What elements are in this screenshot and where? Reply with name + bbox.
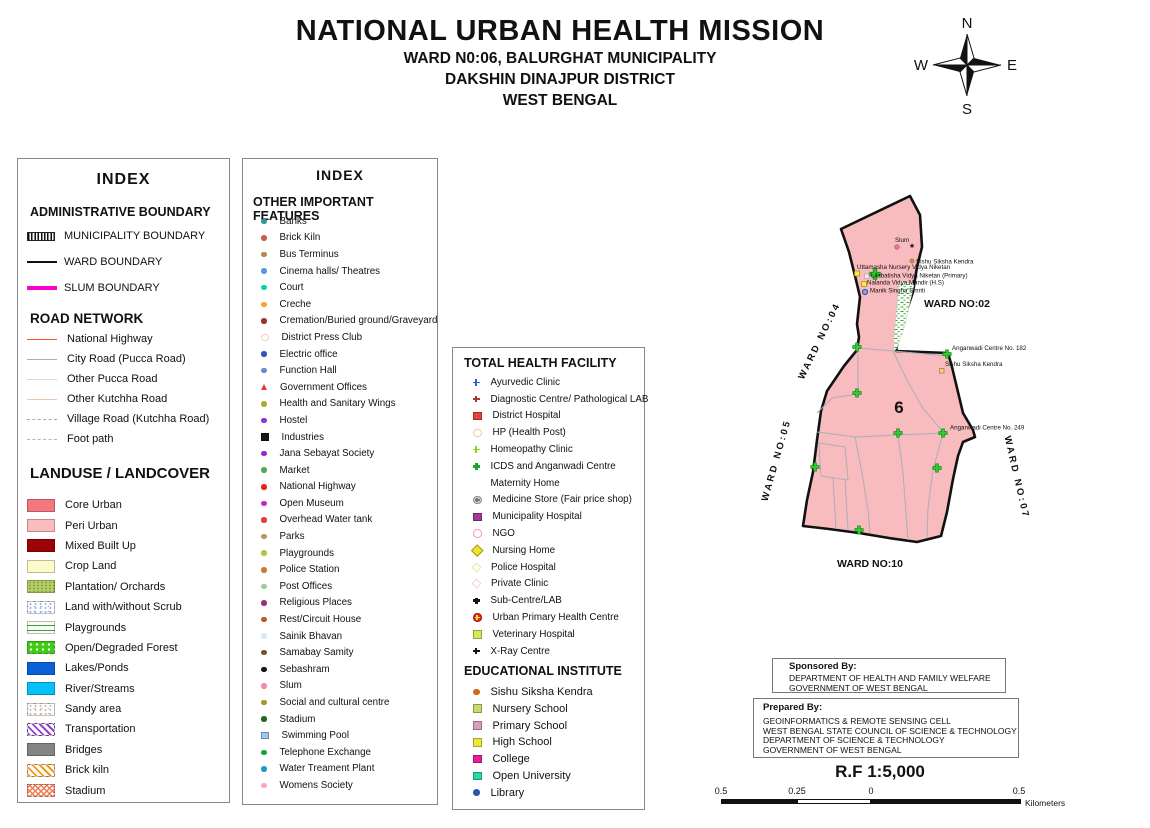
scale-unit-label: Kilometers (1025, 798, 1065, 808)
health-marker-icon (473, 446, 480, 453)
legend-item-label: Court (280, 282, 304, 293)
legend-item-label: Other Pucca Road (67, 373, 158, 385)
legend-item: Lakes/Ponds (18, 658, 229, 678)
legend-item-label: X-Ray Centre (491, 646, 550, 657)
section-landuse: LANDUSE / LANDCOVER (18, 465, 229, 485)
legend-item-label: Veterinary Hospital (493, 629, 575, 640)
legend-item: Mixed Built Up (18, 536, 229, 556)
feature-marker-icon (261, 219, 267, 225)
compass-rose-icon: N W E S (905, 12, 1029, 124)
legend-item-label: Foot path (67, 433, 113, 445)
health-marker-icon (473, 513, 482, 522)
legend-item-label: Peri Urban (65, 520, 118, 532)
scale-tick-label: 0.5 (1013, 786, 1026, 796)
legend-item-label: Private Clinic (491, 578, 548, 589)
feature-marker-icon (261, 467, 267, 473)
legend-item-label: Land with/without Scrub (65, 601, 182, 613)
legend-item-label: Village Road (Kutchha Road) (67, 413, 209, 425)
feature-marker-icon (261, 501, 267, 507)
legend-item: Sainik Bhavan (243, 628, 437, 645)
feature-marker-icon (261, 584, 267, 590)
legend-item: Industries (243, 429, 437, 446)
legend-item-label: Sishu Siksha Kendra (491, 686, 593, 698)
poi-label: Uttamasha Nursery Vidya Niketan (857, 264, 951, 271)
legend-item-label: Municipality Hospital (493, 511, 582, 522)
feature-marker-icon (261, 766, 267, 772)
legend-item-label: Religious Places (280, 597, 352, 608)
legend-item-label: Creche (280, 299, 312, 310)
legend-item: Cremation/Buried ground/Graveyard (243, 313, 437, 330)
legend-item: River/Streams (18, 679, 229, 699)
road-line-swatch (27, 379, 57, 380)
education-marker-icon (473, 689, 480, 696)
legend-item: Brick Kiln (243, 230, 437, 247)
health-marker-icon (472, 579, 482, 589)
legend-item: Electric office (243, 346, 437, 363)
feature-marker-icon (261, 252, 267, 258)
scale-bar-segment (797, 799, 871, 804)
legend-item: City Road (Pucca Road) (18, 349, 229, 369)
neighbor-ward-label: WARD NO:02 (924, 298, 990, 310)
poi-label: Anganwadi Centre No. 182 (952, 345, 1027, 352)
feature-marker-icon (261, 302, 267, 308)
poi-label: Sishu Siksha Kendra (945, 361, 1003, 368)
legend-item-label: Cinema halls/ Theatres (280, 266, 381, 277)
legend-item: Health and Sanitary Wings (243, 396, 437, 413)
sishu-kendra-dot (910, 259, 914, 263)
legend-item-label: Medicine Store (Fair price shop) (493, 494, 632, 505)
legend-item: HP (Health Post) (453, 424, 644, 441)
boundary-swatch-icon (27, 261, 57, 264)
landuse-swatch (27, 703, 55, 716)
scale-tick-label: 0.25 (788, 786, 806, 796)
legend-item: SLUM BOUNDARY (18, 275, 229, 301)
legend-item: ICDS and Anganwadi Centre (453, 458, 644, 475)
legend-item-label: ICDS and Anganwadi Centre (491, 461, 616, 472)
health-marker-icon (473, 412, 482, 421)
legend-item: Social and cultural centre (243, 694, 437, 711)
landuse-swatch (27, 743, 55, 756)
legend-item: Nursing Home (453, 542, 644, 559)
feature-marker-icon (261, 268, 267, 274)
legend-item: National Highway (18, 329, 229, 349)
neighbor-ward-label: WARD NO:05 (760, 418, 794, 502)
landuse-swatch (27, 539, 55, 552)
compass-s-label: S (962, 101, 972, 118)
legend-item-label: Swimming Pool (282, 730, 350, 741)
school-square-marker (855, 271, 860, 276)
legend-item-label: Homeopathy Clinic (491, 444, 573, 455)
landuse-swatch (27, 580, 55, 593)
legend-item-label: Urban Primary Health Centre (493, 612, 619, 623)
scale-tick-label: 0 (868, 786, 873, 796)
legend-item-label: Playgrounds (280, 548, 334, 559)
compass-star (933, 34, 1001, 96)
legend-title: INDEX (18, 171, 229, 193)
legend-item-label: Police Hospital (491, 562, 556, 573)
legend-item-label: Market (280, 465, 310, 476)
legend-item-label: Bridges (65, 744, 102, 756)
road-line-swatch (27, 359, 57, 360)
feature-marker-icon (261, 600, 267, 606)
poi-label: Manik Singha Smriti (870, 288, 925, 295)
legend-panel-index: INDEX ADMINISTRATIVE BOUNDARY MUNICIPALI… (17, 158, 230, 803)
feature-marker-icon (261, 617, 267, 623)
legend-item-label: College (493, 753, 530, 765)
health-marker-icon (473, 529, 482, 538)
sponsored-by-title: Sponsored By: (789, 662, 1005, 672)
feature-marker-icon (261, 285, 267, 291)
legend-item: Sandy area (18, 699, 229, 719)
legend-item: Crop Land (18, 556, 229, 576)
legend-item: Maternity Home (453, 475, 644, 492)
legend-item: Stadium (243, 711, 437, 728)
education-marker-icon (473, 789, 480, 796)
legend-item: Womens Society (243, 777, 437, 794)
neighbor-ward-label: WARD NO:10 (837, 558, 903, 570)
health-marker-icon (473, 496, 482, 505)
landuse-swatch (27, 560, 55, 573)
legend-item: Overhead Water tank (243, 512, 437, 529)
representative-fraction: R.F 1:5,000 (705, 762, 1055, 782)
legend-item: Samabay Samity (243, 644, 437, 661)
health-marker-icon (472, 562, 482, 572)
feature-marker-icon (261, 384, 267, 390)
legend-item-label: Government Offices (280, 382, 367, 393)
legend-item: Municipality Hospital (453, 508, 644, 525)
legend-item-label: Nursing Home (493, 545, 556, 556)
feature-marker-icon (261, 484, 267, 490)
legend-item: Primary School (453, 717, 644, 734)
legend-item: Telephone Exchange (243, 744, 437, 761)
legend-item: Court (243, 279, 437, 296)
legend-item-label: Police Station (280, 564, 340, 575)
sponsored-line: GOVERNMENT OF WEST BENGAL (789, 684, 1005, 694)
legend-item-label: Electric office (280, 349, 338, 360)
legend-item-label: Other Kutchha Road (67, 393, 167, 405)
feature-list: Banks Brick Kiln Bus Terminus Cinema hal… (243, 213, 437, 794)
boundary-swatch-icon (27, 286, 57, 290)
ward-number: 6 (894, 398, 903, 417)
legend-item: Water Treament Plant (243, 761, 437, 778)
legend-item: Foot path (18, 429, 229, 449)
legend-item-label: Library (491, 787, 525, 799)
legend-item: Police Station (243, 561, 437, 578)
legend-item: Peri Urban (18, 515, 229, 535)
ward-boundary-polygon (803, 196, 975, 542)
feature-marker-icon (261, 433, 269, 441)
legend-item-label: National Highway (67, 333, 153, 345)
legend-item: WARD BOUNDARY (18, 249, 229, 275)
education-marker-icon (473, 772, 482, 781)
legend-item-label: HP (Health Post) (493, 427, 566, 438)
educational-list: Sishu Siksha Kendra Nursery School Prima… (453, 684, 644, 802)
legend-item: Village Road (Kutchha Road) (18, 409, 229, 429)
legend-item-label: NGO (493, 528, 515, 539)
legend-item: Police Hospital (453, 559, 644, 576)
legend-item-label: Sainik Bhavan (280, 631, 343, 642)
prepared-line: GOVERNMENT OF WEST BENGAL (763, 746, 1018, 756)
legend-item: Homeopathy Clinic (453, 441, 644, 458)
scale-bar: 0.5 0.25 0 0.5 Kilometers (705, 786, 1075, 814)
legend-item-label: Post Offices (280, 581, 333, 592)
legend-item: Swimming Pool (243, 727, 437, 744)
legend-item: Sishu Siksha Kendra (453, 684, 644, 701)
legend-item: Veterinary Hospital (453, 626, 644, 643)
legend-item-label: Stadium (65, 785, 105, 797)
legend-item-label: Crop Land (65, 560, 116, 572)
feature-marker-icon (261, 716, 267, 722)
poi-label: Lilabatisha Vidya Niketan (Primary) (871, 273, 968, 280)
feature-marker-icon (261, 334, 269, 342)
legend-item-label: Playgrounds (65, 622, 126, 634)
feature-marker-icon (261, 550, 267, 556)
compass-n-label: N (962, 15, 973, 32)
scale-bar-segment (721, 799, 797, 804)
primary-school-marker (865, 274, 870, 279)
legend-item-label: Water Treament Plant (280, 763, 375, 774)
legend-item: Core Urban (18, 495, 229, 515)
feature-marker-icon (261, 368, 267, 374)
legend-item: X-Ray Centre (453, 643, 644, 660)
feature-marker-icon (261, 732, 269, 740)
legend-item-label: Diagnostic Centre/ Pathological LAB (491, 394, 649, 405)
landuse-swatch (27, 784, 55, 797)
feature-marker-icon (261, 783, 267, 789)
legend-item: Religious Places (243, 595, 437, 612)
legend-item: Diagnostic Centre/ Pathological LAB (453, 391, 644, 408)
legend-item: Market (243, 462, 437, 479)
ward-map: ★ Slum Sishu Siksha Kendra Uttamasha Nur… (700, 185, 1060, 630)
legend-item-label: Function Hall (280, 365, 337, 376)
legend-item-label: Sub-Centre/LAB (491, 595, 562, 606)
health-marker-icon (473, 463, 480, 470)
health-marker-icon (473, 648, 480, 655)
sishu-kendra-square (940, 369, 945, 374)
legend-item-label: City Road (Pucca Road) (67, 353, 186, 365)
legend-item-label: Maternity Home (491, 478, 560, 489)
legend-item: College (453, 751, 644, 768)
slum-dot-marker (895, 245, 900, 250)
legend-item: Bus Terminus (243, 246, 437, 263)
legend-item-label: Plantation/ Orchards (65, 581, 165, 593)
legend-item-label: Slum (280, 680, 302, 691)
legend-item-label: Cremation/Buried ground/Graveyard (280, 315, 438, 326)
legend-item: Slum (243, 678, 437, 695)
feature-marker-icon (261, 700, 267, 706)
legend-item: Government Offices (243, 379, 437, 396)
road-network-list: National Highway City Road (Pucca Road) … (18, 329, 229, 449)
landuse-swatch (27, 682, 55, 695)
section-health-facility: TOTAL HEALTH FACILITY (453, 356, 644, 374)
legend-item: Stadium (18, 780, 229, 800)
education-marker-icon (473, 738, 482, 747)
health-marker-icon (471, 544, 483, 556)
feature-marker-icon (261, 633, 267, 639)
legend-item: Ayurvedic Clinic (453, 374, 644, 391)
legend-item: Open University (453, 768, 644, 785)
legend-item: Brick kiln (18, 760, 229, 780)
legend-item: Creche (243, 296, 437, 313)
compass-e-label: E (1007, 57, 1017, 74)
legend-item-label: Mixed Built Up (65, 540, 136, 552)
feature-marker-icon (261, 235, 267, 241)
legend-item: Function Hall (243, 362, 437, 379)
legend-item: Bridges (18, 740, 229, 760)
legend-item: Land with/without Scrub (18, 597, 229, 617)
legend-item-label: Lakes/Ponds (65, 662, 129, 674)
landuse-swatch (27, 601, 55, 614)
road-line-swatch (27, 439, 57, 440)
legend-panel-features: INDEX OTHER IMPORTANT FEATURES Banks Bri… (242, 158, 438, 805)
legend-item: Transportation (18, 719, 229, 739)
legend-item: Jana Sebayat Society (243, 445, 437, 462)
legend-item: MUNICIPALITY BOUNDARY (18, 223, 229, 249)
feature-marker-icon (261, 567, 267, 573)
feature-marker-icon (261, 451, 267, 457)
legend-item-label: National Highway (280, 481, 356, 492)
legend-item-label: Brick Kiln (280, 232, 321, 243)
legend-item-label: Health and Sanitary Wings (280, 398, 396, 409)
prepared-by-title: Prepared By: (763, 703, 1018, 713)
page-title: NATIONAL URBAN HEALTH MISSION (170, 14, 950, 48)
legend-item: Open Museum (243, 495, 437, 512)
slum-star-marker: ★ (909, 242, 915, 250)
legend-item-label: Social and cultural centre (280, 697, 390, 708)
legend-item-label: Open University (493, 770, 571, 782)
landuse-swatch (27, 662, 55, 675)
slum-label: Slum (895, 237, 909, 244)
health-marker-icon (473, 630, 482, 639)
legend-item: Other Kutchha Road (18, 389, 229, 409)
health-marker-icon (473, 379, 480, 386)
section-road-network: ROAD NETWORK (18, 311, 229, 329)
legend-item: Post Offices (243, 578, 437, 595)
legend-item-label: Parks (280, 531, 305, 542)
legend-item-label: Open/Degraded Forest (65, 642, 178, 654)
map-title-block: NATIONAL URBAN HEALTH MISSION WARD N0:06… (170, 14, 950, 111)
legend-item-label: WARD BOUNDARY (64, 256, 162, 268)
legend-item-label: Overhead Water tank (280, 514, 373, 525)
legend-item: Nursery School (453, 700, 644, 717)
feature-marker-icon (261, 318, 267, 324)
legend-item: Cinema halls/ Theatres (243, 263, 437, 280)
landuse-swatch (27, 519, 55, 532)
legend-item: Medicine Store (Fair price shop) (453, 492, 644, 509)
legend-item-label: Stadium (280, 714, 316, 725)
legend-item: Playgrounds (18, 617, 229, 637)
poi-label: Nalanda Vidya Mandir (H.S) (867, 280, 944, 287)
landuse-swatch (27, 499, 55, 512)
boundary-swatch-icon (27, 232, 55, 241)
feature-marker-icon (261, 351, 267, 357)
boundary-swatch-wrap (18, 261, 64, 264)
legend-item: District Hospital (453, 408, 644, 425)
legend-item-label: River/Streams (65, 683, 135, 695)
poi-label: Anganwadi Centre No. 249 (950, 425, 1025, 432)
landuse-swatch (27, 641, 55, 654)
legend-item: High School (453, 734, 644, 751)
legend-item-label: Core Urban (65, 499, 122, 511)
legend-item: Other Pucca Road (18, 369, 229, 389)
feature-marker-icon (261, 517, 267, 523)
legend-item: Sub-Centre/LAB (453, 592, 644, 609)
landuse-swatch (27, 723, 55, 736)
feature-marker-icon (261, 667, 267, 673)
legend-item-label: Sebashram (280, 664, 330, 675)
legend-item: Library (453, 784, 644, 801)
legend-item-label: Rest/Circuit House (280, 614, 362, 625)
feature-marker-icon (261, 650, 267, 656)
legend-item-label: Samabay Samity (280, 647, 354, 658)
scale-bar-segment (871, 799, 1021, 804)
subtitle-state: WEST BENGAL (170, 90, 950, 111)
legend-item-label: Womens Society (280, 780, 353, 791)
health-marker-icon (473, 598, 480, 605)
compass-w-label: W (914, 57, 929, 74)
boundary-swatch-wrap (18, 232, 64, 241)
legend-item-label: Transportation (65, 723, 136, 735)
scale-tick-label: 0.5 (715, 786, 728, 796)
feature-marker-icon (261, 750, 267, 756)
feature-marker-icon (261, 683, 267, 689)
feature-marker-icon (261, 534, 267, 540)
prepared-by-box: Prepared By: GEOINFORMATICS & REMOTE SEN… (753, 698, 1019, 758)
legend-panel-health: TOTAL HEALTH FACILITY Ayurvedic Clinic D… (452, 347, 645, 810)
legend-title: INDEX (243, 167, 437, 189)
legend-item-label: Primary School (493, 720, 568, 732)
section-other-features: OTHER IMPORTANT FEATURES (243, 195, 437, 213)
section-educational-institute: EDUCATIONAL INSTITUTE (453, 664, 644, 684)
legend-item-label: District Press Club (282, 332, 363, 343)
road-line-swatch (27, 339, 57, 340)
legend-item: Playgrounds (243, 545, 437, 562)
feature-marker-icon (261, 401, 267, 407)
neighbor-ward-label: WARD NO:07 (1002, 435, 1032, 520)
landuse-swatch (27, 621, 55, 634)
subtitle-ward: WARD N0:06, BALURGHAT MUNICIPALITY (170, 48, 950, 69)
legend-item-label: Industries (282, 432, 324, 443)
legend-item: Plantation/ Orchards (18, 577, 229, 597)
legend-item-label: High School (493, 736, 552, 748)
legend-item-label: Hostel (280, 415, 308, 426)
section-administrative-boundary: ADMINISTRATIVE BOUNDARY (18, 205, 229, 223)
road-line-swatch (27, 419, 57, 420)
admin-boundary-list: MUNICIPALITY BOUNDARY WARD BOUNDARY SLUM… (18, 223, 229, 301)
health-marker-icon (473, 613, 482, 622)
health-facility-list: Ayurvedic Clinic Diagnostic Centre/ Path… (453, 374, 644, 660)
legend-item-label: Open Museum (280, 498, 344, 509)
legend-item-label: Telephone Exchange (280, 747, 372, 758)
legend-item-label: Jana Sebayat Society (280, 448, 375, 459)
legend-item-label: Brick kiln (65, 764, 109, 776)
landuse-swatch (27, 764, 55, 777)
legend-item: District Press Club (243, 329, 437, 346)
health-marker-icon (473, 429, 482, 438)
health-marker-icon (473, 396, 480, 403)
legend-item: Rest/Circuit House (243, 611, 437, 628)
legend-item-label: Ayurvedic Clinic (491, 377, 561, 388)
boundary-swatch-wrap (18, 286, 64, 290)
legend-item: Urban Primary Health Centre (453, 609, 644, 626)
road-line-swatch (27, 399, 57, 400)
legend-item: Open/Degraded Forest (18, 638, 229, 658)
legend-item-label: MUNICIPALITY BOUNDARY (64, 230, 205, 242)
legend-item: Hostel (243, 412, 437, 429)
landuse-list: Core Urban Peri Urban Mixed Built Up Cro… (18, 495, 229, 801)
manik-marker (862, 289, 867, 294)
legend-item-label: Nursery School (493, 703, 568, 715)
